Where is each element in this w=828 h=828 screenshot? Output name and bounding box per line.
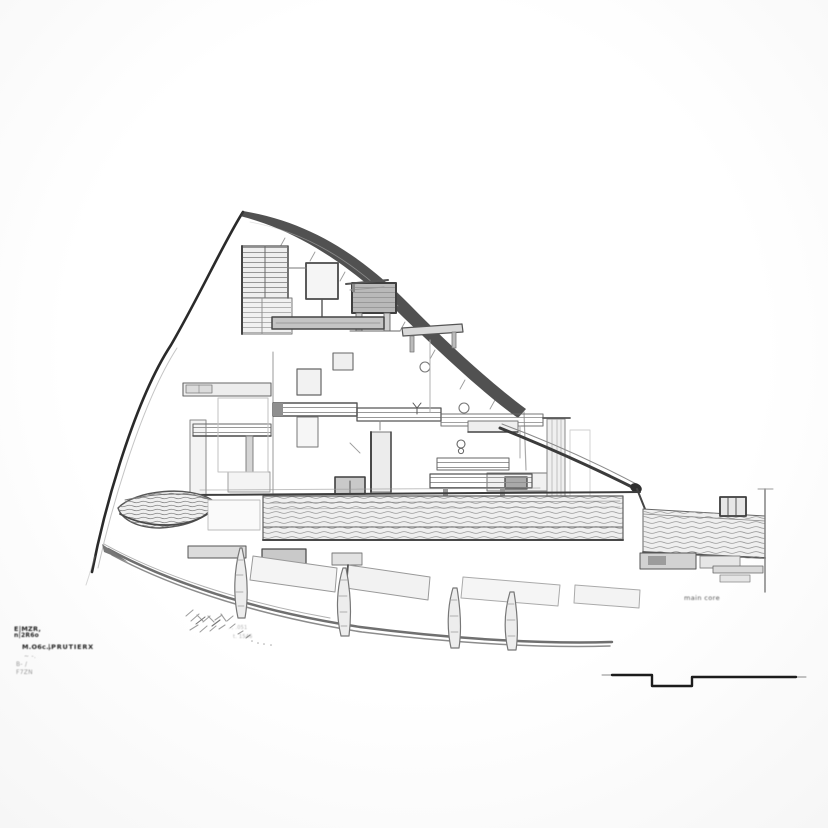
- sketch-circle-glyph: [420, 362, 430, 372]
- right-rooftop-box: [720, 497, 746, 516]
- sketch-circle-glyph: [457, 440, 465, 448]
- title-block-line-6: B- /: [16, 662, 27, 668]
- ground-note-2: t. 1546: [233, 635, 253, 640]
- title-block-line-4: |PRUTIERX: [48, 644, 94, 651]
- main-core-label: main core: [684, 595, 720, 602]
- step-datum-line: [602, 675, 806, 686]
- sketch-canvas: E|MZR, n|2R6o M.O6c.. |PRUTIERX ~ -. B- …: [0, 0, 828, 828]
- title-block-line-2: n|2R6o: [14, 633, 39, 639]
- vertical-slab: [371, 432, 391, 492]
- title-block-line-7: F7ZN: [16, 670, 33, 676]
- main-band: [263, 496, 623, 540]
- cypress-tree: [448, 588, 460, 648]
- block-box: [306, 263, 338, 299]
- section-sketch-drawing: [0, 0, 828, 828]
- sketch-circle-glyph: [459, 403, 469, 413]
- mid-structures: [183, 340, 590, 505]
- pond-lens: [118, 491, 213, 528]
- lower-terraces: [250, 556, 640, 608]
- ground-note-1: . , .051: [228, 626, 248, 631]
- title-block-line-5: ~ -.: [24, 654, 36, 660]
